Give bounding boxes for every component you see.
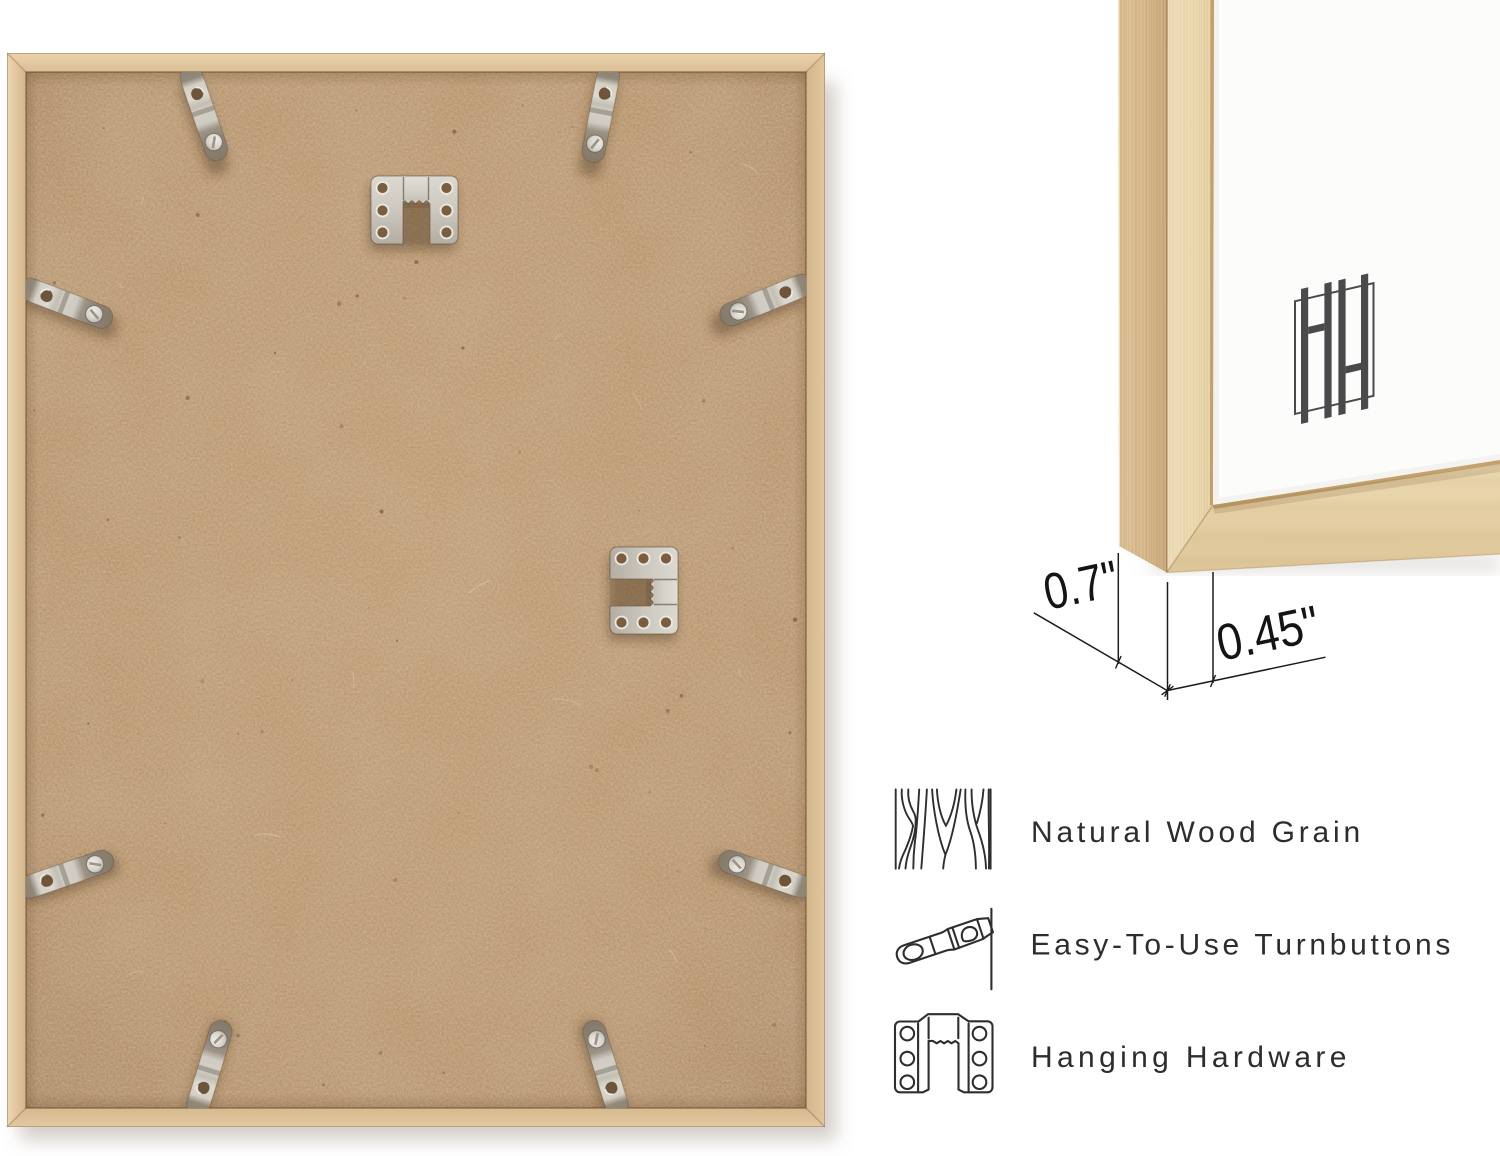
svg-text:Hanging Hardware: Hanging Hardware xyxy=(1031,1041,1351,1074)
svg-text:Natural Wood Grain: Natural Wood Grain xyxy=(1031,816,1364,849)
svg-text:Easy-To-Use Turnbuttons: Easy-To-Use Turnbuttons xyxy=(1031,929,1455,962)
